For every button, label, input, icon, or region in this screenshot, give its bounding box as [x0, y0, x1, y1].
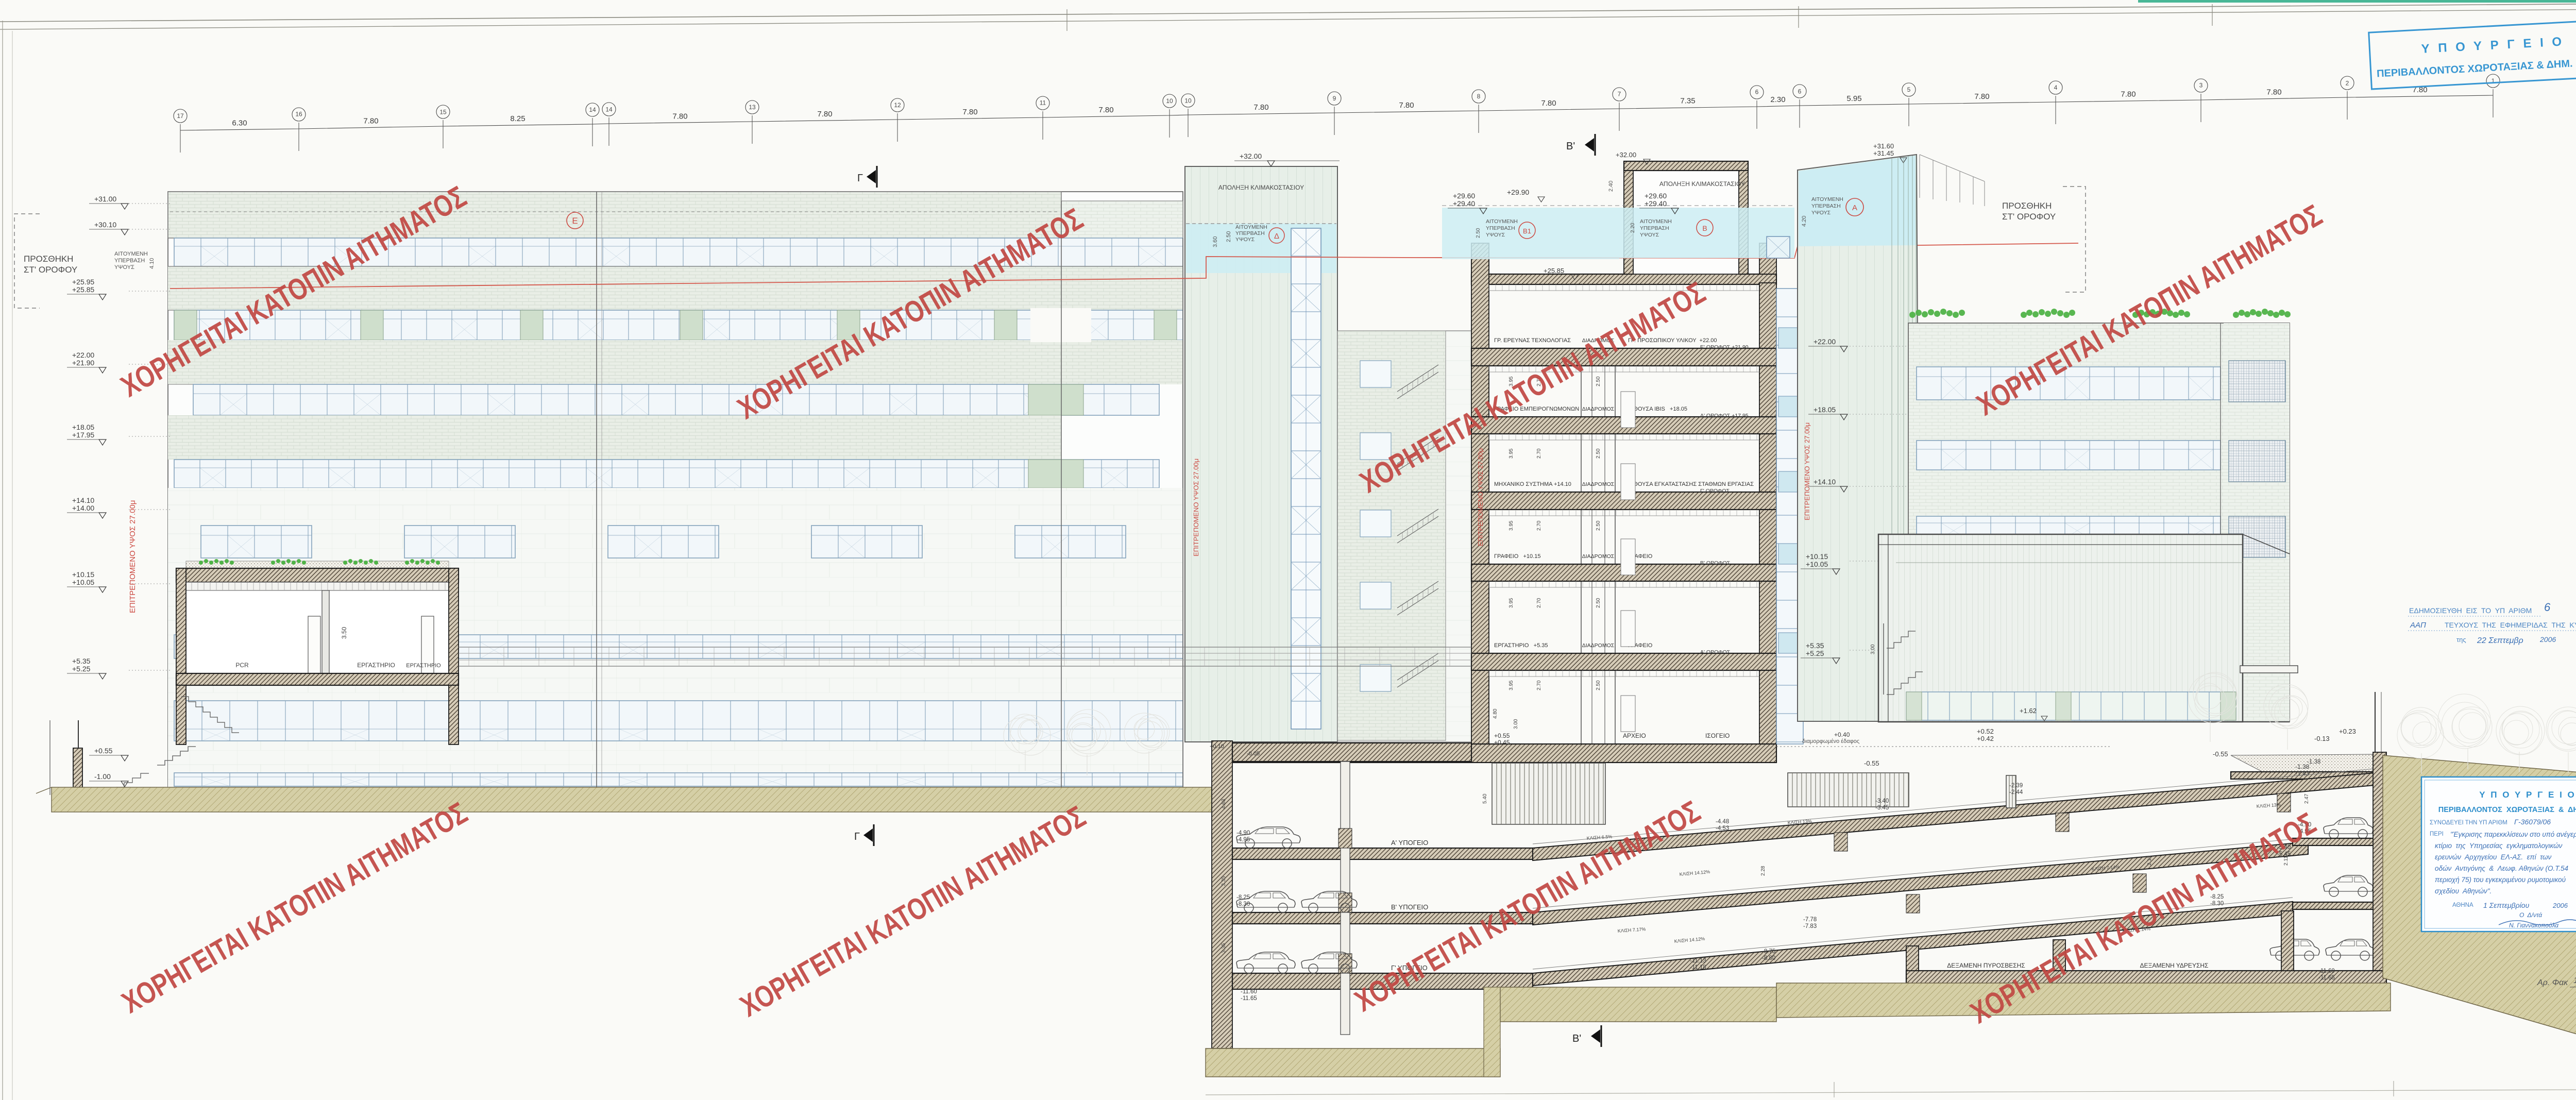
svg-text:της: της — [2456, 636, 2466, 644]
svg-text:-3.45: -3.45 — [1875, 805, 1889, 811]
svg-text:ΥΠΕΡΒΑΣΗ: ΥΠΕΡΒΑΣΗ — [1811, 203, 1841, 209]
svg-text:ΑΙΤΟΥΜΕΝΗ: ΑΙΤΟΥΜΕΝΗ — [1486, 218, 1518, 225]
svg-text:ΕΠΙΤΡΕΠΟΜΕΝΟ ΥΨΟΣ 27.00μ: ΕΠΙΤΡΕΠΟΜΕΝΟ ΥΨΟΣ 27.00μ — [1803, 422, 1811, 520]
svg-text:-11.60: -11.60 — [1241, 989, 1257, 995]
svg-text:6: 6 — [2544, 601, 2551, 614]
svg-text:+0.42: +0.42 — [1977, 735, 1994, 742]
svg-text:+30.10: +30.10 — [94, 221, 116, 229]
svg-text:3: 3 — [2199, 82, 2203, 89]
svg-text:ΔΕΞΑΜΕΝΗ ΥΔΡΕΥΣΗΣ: ΔΕΞΑΜΕΝΗ ΥΔΡΕΥΣΗΣ — [2140, 962, 2209, 969]
svg-text:5.95: 5.95 — [1846, 94, 1861, 103]
svg-text:ΑΙΤΟΥΜΕΝΗ: ΑΙΤΟΥΜΕΝΗ — [114, 251, 148, 257]
svg-text:ΥΠΕΡΒΑΣΗ: ΥΠΕΡΒΑΣΗ — [1486, 225, 1515, 231]
svg-text:Α' ΟΡΟΦΟΣ: Α' ΟΡΟΦΟΣ — [1700, 649, 1731, 655]
svg-text:ΣΥΝΟΔΕΥΕΙ ΤΗΝ ΥΠ ΑΡΙΘΜ: ΣΥΝΟΔΕΥΕΙ ΤΗΝ ΥΠ ΑΡΙΘΜ — [2430, 820, 2507, 826]
svg-text:-8.30: -8.30 — [1236, 901, 1250, 907]
svg-text:+14.00: +14.00 — [72, 504, 94, 512]
svg-text:PCR: PCR — [235, 662, 249, 669]
svg-text:+25.95: +25.95 — [72, 278, 94, 286]
svg-text:Γ' ΟΡΟΦΟΣ: Γ' ΟΡΟΦΟΣ — [1700, 488, 1730, 494]
svg-text:ΥΠΕΡΒΑΣΗ: ΥΠΕΡΒΑΣΗ — [114, 258, 145, 264]
svg-text:2.70: 2.70 — [1536, 598, 1542, 608]
svg-text:+5.25: +5.25 — [1806, 649, 1824, 657]
svg-text:8.25: 8.25 — [510, 114, 525, 123]
svg-text:+14.10: +14.10 — [72, 496, 94, 504]
svg-text:-8.75: -8.75 — [1762, 949, 1775, 955]
svg-text:-3.40: -3.40 — [1875, 798, 1889, 804]
svg-text:Β' ΥΠΟΓΕΙΟ: Β' ΥΠΟΓΕΙΟ — [1391, 903, 1428, 911]
svg-text:-7.83: -7.83 — [1803, 923, 1817, 929]
svg-text:2: 2 — [2346, 79, 2349, 87]
svg-text:5: 5 — [1907, 86, 1911, 93]
svg-text:3.95: 3.95 — [1509, 448, 1514, 459]
svg-text:Ε: Ε — [572, 216, 578, 226]
svg-text:ΣΤ' ΟΡΟΦΟΥ: ΣΤ' ΟΡΟΦΟΥ — [2002, 212, 2056, 222]
svg-text:Αρ. Φακ: Αρ. Φακ — [2537, 978, 2568, 987]
svg-text:2.20: 2.20 — [1630, 223, 1636, 233]
svg-text:2.50: 2.50 — [1596, 376, 1601, 386]
svg-text:-4.95: -4.95 — [1236, 837, 1250, 843]
svg-text:17: 17 — [177, 112, 184, 120]
svg-text:3.60: 3.60 — [1212, 236, 1218, 247]
svg-text:ΕΡΓΑΣΤΗΡΙΟ +5.35: ΕΡΓΑΣΤΗΡΙΟ +5.35 — [1494, 642, 1548, 649]
svg-text:2.50: 2.50 — [1596, 598, 1601, 608]
svg-text:-11.65: -11.65 — [1241, 995, 1257, 1002]
svg-text:ΥΠΕΡΒΑΣΗ: ΥΠΕΡΒΑΣΗ — [1235, 230, 1265, 236]
svg-text:-1.00: -1.00 — [94, 772, 111, 781]
svg-text:ΓΡ. ΕΡΕΥΝΑΣ ΤΕΧΝΟΛΟΓΙΑΣ: ΓΡ. ΕΡΕΥΝΑΣ ΤΕΧΝΟΛΟΓΙΑΣ — [1494, 337, 1571, 344]
svg-text:14: 14 — [589, 106, 596, 113]
svg-text:+5.35: +5.35 — [72, 657, 91, 665]
svg-text:+14.10: +14.10 — [1814, 478, 1836, 486]
svg-text:ΑΠΟΛΗΞΗ ΚΛΙΜΑΚΟΣΤΑΣΙΟΥ: ΑΠΟΛΗΞΗ ΚΛΙΜΑΚΟΣΤΑΣΙΟΥ — [1659, 180, 1745, 188]
svg-text:Γ-36079/06: Γ-36079/06 — [2514, 818, 2551, 826]
svg-text:ΥΨΟΥΣ: ΥΨΟΥΣ — [114, 264, 134, 270]
svg-text:7.35: 7.35 — [1680, 97, 1695, 106]
svg-text:ΔΙΑΔΡΟΜΟΣ: ΔΙΑΔΡΟΜΟΣ — [1582, 481, 1615, 487]
svg-text:9: 9 — [1333, 95, 1336, 102]
svg-text:+18.05: +18.05 — [1814, 405, 1836, 414]
svg-text:4.20: 4.20 — [1801, 216, 1807, 227]
svg-text:6: 6 — [1798, 88, 1802, 95]
svg-text:διαμορφωμένο έδαφος: διαμορφωμένο έδαφος — [1802, 738, 1859, 744]
svg-text:ερευνών Αρχηγείου ΕΛ-ΑΣ. επ: ερευνών Αρχηγείου ΕΛ-ΑΣ. επί των — [2435, 853, 2551, 861]
svg-text:-8.25: -8.25 — [1236, 894, 1250, 901]
svg-text:Β1: Β1 — [1523, 227, 1531, 235]
svg-text:-7.78: -7.78 — [1803, 917, 1817, 923]
svg-text:2006: 2006 — [2552, 902, 2568, 909]
svg-text:11: 11 — [1040, 99, 1046, 107]
svg-text:7.80: 7.80 — [363, 116, 378, 125]
svg-text:+25.85: +25.85 — [72, 285, 94, 294]
svg-text:6: 6 — [1755, 89, 1759, 96]
svg-text:+32.00: +32.00 — [1240, 152, 1262, 160]
svg-text:ΥΨΟΥΣ: ΥΨΟΥΣ — [1640, 232, 1659, 238]
svg-text:3.35: 3.35 — [1221, 876, 1227, 886]
svg-text:2.70: 2.70 — [1536, 680, 1542, 690]
svg-text:σχεδίου Αθηνών".: σχεδίου Αθηνών". — [2435, 887, 2492, 895]
svg-text:2.50: 2.50 — [1596, 680, 1601, 690]
svg-text:16: 16 — [295, 111, 302, 118]
svg-text:ΕΠΙΤΡΕΠΟΜΕΝΟ ΥΨΟΣ 27.00μ: ΕΠΙΤΡΕΠΟΜΕΝΟ ΥΨΟΣ 27.00μ — [128, 500, 137, 613]
svg-text:7.80: 7.80 — [1541, 99, 1556, 108]
svg-text:ΕΠΙΤΡΕΠΟΜΕΝΟ ΥΨΟΣ 27.00μ: ΕΠΙΤΡΕΠΟΜΕΝΟ ΥΨΟΣ 27.00μ — [1192, 459, 1200, 556]
svg-text:ΕΔΗΜΟΣΙΕΥΘΗ ΕΙΣ ΤΟ ΥΠ ΑΡΙΘ: ΕΔΗΜΟΣΙΕΥΘΗ ΕΙΣ ΤΟ ΥΠ ΑΡΙΘΜ — [2409, 606, 2532, 615]
svg-text:2.70: 2.70 — [1536, 448, 1542, 459]
svg-text:ΠΡΟΣΘΗΚΗ: ΠΡΟΣΘΗΚΗ — [2002, 201, 2052, 211]
svg-text:-11.60: -11.60 — [2318, 968, 2335, 974]
svg-text:4.63: 4.63 — [1221, 799, 1227, 809]
svg-text:"Έγκρισης παρεκκλίσεων στο υπό: "Έγκρισης παρεκκλίσεων στο υπό ανέγερση — [2450, 831, 2576, 838]
svg-text:+31.60: +31.60 — [1873, 142, 1894, 150]
svg-text:+17.95: +17.95 — [72, 431, 94, 439]
svg-text:3.95: 3.95 — [1509, 520, 1514, 531]
svg-text:ΥΨΟΥΣ: ΥΨΟΥΣ — [1486, 232, 1505, 238]
svg-text:Γ: Γ — [857, 173, 863, 184]
svg-text:Α' ΥΠΟΓΕΙΟ: Α' ΥΠΟΓΕΙΟ — [1391, 839, 1428, 847]
svg-text:περιοχή 75) του εγκεκριμένου ρ: περιοχή 75) του εγκεκριμένου ρυμοτομικού — [2435, 876, 2566, 884]
svg-text:+22.00: +22.00 — [1814, 337, 1836, 346]
svg-text:ΕΡΓΑΣΤΗΡΙΟ: ΕΡΓΑΣΤΗΡΙΟ — [357, 662, 395, 669]
svg-text:138/06: 138/06 — [2573, 975, 2576, 985]
svg-text:Ε' ΟΡΟΦΟΣ +21.90: Ε' ΟΡΟΦΟΣ +21.90 — [1700, 344, 1749, 350]
svg-text:1 Σεπτεμβρίου: 1 Σεπτεμβρίου — [2483, 901, 2530, 909]
svg-text:2.19: 2.19 — [2147, 855, 2153, 866]
svg-text:ΓΡΑΦΕΙΟ +10.15: ΓΡΑΦΕΙΟ +10.15 — [1494, 553, 1540, 560]
svg-text:7.80: 7.80 — [2121, 90, 2136, 99]
svg-text:7.80: 7.80 — [1098, 106, 1113, 114]
svg-text:Ν. Γιαννακοπούλα: Ν. Γιαννακοπούλα — [2509, 922, 2559, 929]
svg-text:ΑΡΧΕΙΟ: ΑΡΧΕΙΟ — [1623, 732, 1646, 739]
svg-text:ΕΡΓΑΣΤΗΡΙΟ: ΕΡΓΑΣΤΗΡΙΟ — [406, 663, 441, 669]
svg-text:+0.10: +0.10 — [1210, 743, 1224, 750]
svg-text:2.40: 2.40 — [1608, 181, 1614, 192]
svg-text:Δ' ΟΡΟΦΟΣ +17.95: Δ' ΟΡΟΦΟΣ +17.95 — [1700, 413, 1749, 419]
svg-text:-4.48: -4.48 — [1716, 819, 1729, 825]
svg-text:2.28: 2.28 — [1760, 866, 1766, 876]
svg-text:3.00: 3.00 — [1870, 644, 1876, 654]
svg-text:ΑΙΘΟΥΣΑ IBIS +18.05: ΑΙΘΟΥΣΑ IBIS +18.05 — [1628, 406, 1687, 412]
svg-text:-4.53: -4.53 — [1716, 825, 1729, 832]
svg-text:+22.00: +22.00 — [72, 351, 94, 359]
svg-text:ΑΙΤΟΥΜΕΝΗ: ΑΙΤΟΥΜΕΝΗ — [1235, 224, 1267, 230]
svg-text:Β': Β' — [1566, 141, 1575, 152]
svg-text:22 Σεπτεμβρ: 22 Σεπτεμβρ — [2477, 636, 2523, 645]
svg-text:7.80: 7.80 — [1399, 101, 1414, 110]
svg-text:13: 13 — [749, 104, 756, 111]
svg-text:3.95: 3.95 — [1509, 598, 1514, 608]
svg-text:ΑΑΠ: ΑΑΠ — [2410, 621, 2426, 630]
svg-text:ΤΕΥΧΟΥΣ ΤΗΣ ΕΦΗΜΕΡΙΔΑΣ ΤΗΣ: ΤΕΥΧΟΥΣ ΤΗΣ ΕΦΗΜΕΡΙΔΑΣ ΤΗΣ ΚΥΒΕΡΝΗΣΕΩΣ — [2445, 621, 2576, 629]
svg-text:+29.60: +29.60 — [1645, 192, 1667, 200]
svg-text:+0.45: +0.45 — [1494, 739, 1510, 746]
svg-text:ΠΡΟΣΘΗΚΗ: ΠΡΟΣΘΗΚΗ — [24, 254, 73, 264]
svg-text:4: 4 — [2054, 84, 2058, 91]
svg-text:-4.90: -4.90 — [1236, 830, 1250, 836]
svg-text:2.50: 2.50 — [1596, 448, 1601, 459]
svg-text:ΕΠΙΤΡΕΠΟΜΕΝΟ ΥΨΟΣ 27.00μ: ΕΠΙΤΡΕΠΟΜΕΝΟ ΥΨΟΣ 27.00μ — [1477, 448, 1484, 546]
svg-text:7: 7 — [1618, 91, 1621, 98]
svg-text:+29.60: +29.60 — [1453, 192, 1475, 200]
svg-text:15: 15 — [439, 108, 447, 115]
svg-text:+29.90: +29.90 — [1507, 188, 1529, 196]
svg-text:Υ Π Ο Υ Ρ Γ Ε Ι Ο: Υ Π Ο Υ Ρ Γ Ε Ι Ο — [2479, 790, 2576, 800]
svg-text:4.80: 4.80 — [1493, 708, 1498, 719]
svg-text:ΔΙΑΔΡΟΜΟΣ: ΔΙΑΔΡΟΜΟΣ — [1582, 406, 1615, 412]
svg-text:2.70: 2.70 — [1536, 520, 1542, 531]
svg-text:ΠΕΡΙ: ΠΕΡΙ — [2430, 831, 2444, 837]
svg-text:+0.55: +0.55 — [1494, 732, 1510, 739]
svg-text:7.80: 7.80 — [672, 112, 687, 121]
svg-text:2006: 2006 — [2539, 635, 2556, 644]
svg-text:Β: Β — [1702, 224, 1707, 232]
svg-text:ΣΤ' ΟΡΟΦΟΥ: ΣΤ' ΟΡΟΦΟΥ — [24, 265, 77, 275]
svg-text:Β' ΟΡΟΦΟΣ: Β' ΟΡΟΦΟΣ — [1700, 560, 1731, 566]
svg-text:κτίριο της Υπηρεσίας εγκλημ: κτίριο της Υπηρεσίας εγκληματολογικών — [2435, 842, 2563, 850]
svg-text:ΑΠΟΛΗΞΗ ΚΛΙΜΑΚΟΣΤΑΣΙΟΥ: ΑΠΟΛΗΞΗ ΚΛΙΜΑΚΟΣΤΑΣΙΟΥ — [1218, 184, 1304, 191]
svg-text:4.10: 4.10 — [149, 258, 155, 269]
svg-text:-11.65: -11.65 — [2318, 975, 2335, 981]
svg-text:+0.40: +0.40 — [1834, 731, 1850, 738]
svg-text:ΜΗΧΑΝΙΚΟ ΣΥΣΤΗΜΑ +14.10: ΜΗΧΑΝΙΚΟ ΣΥΣΤΗΜΑ +14.10 — [1494, 481, 1571, 487]
svg-text:10: 10 — [1184, 97, 1192, 104]
svg-text:ΙΣΟΓΕΙΟ: ΙΣΟΓΕΙΟ — [1705, 732, 1730, 739]
svg-text:ΔΕΞΑΜΕΝΗ ΠΥΡΟΣΒΕΣΗΣ: ΔΕΞΑΜΕΝΗ ΠΥΡΟΣΒΕΣΗΣ — [1947, 962, 2025, 969]
svg-text:Γ: Γ — [854, 831, 860, 842]
svg-text:ΥΨΟΥΣ: ΥΨΟΥΣ — [1811, 210, 1831, 216]
svg-text:+1.62: +1.62 — [2020, 707, 2037, 715]
svg-text:-11.18: -11.18 — [1690, 964, 1706, 971]
svg-text:+0.55: +0.55 — [94, 747, 113, 755]
svg-text:+29.40: +29.40 — [1645, 199, 1667, 208]
svg-text:3.00: 3.00 — [1513, 719, 1519, 729]
svg-text:-1.38: -1.38 — [2307, 759, 2320, 765]
svg-text:+31.45: +31.45 — [1873, 149, 1894, 157]
svg-text:ΑΙΤΟΥΜΕΝΗ: ΑΙΤΟΥΜΕΝΗ — [1640, 218, 1672, 225]
svg-text:2.30: 2.30 — [1770, 95, 1785, 104]
svg-text:+0.23: +0.23 — [2339, 727, 2356, 735]
svg-text:+32.00: +32.00 — [1616, 151, 1636, 159]
svg-text:+10.05: +10.05 — [1806, 560, 1828, 568]
svg-text:5.40: 5.40 — [1482, 793, 1488, 804]
svg-text:+0.52: +0.52 — [1977, 727, 1994, 735]
svg-text:-0.55: -0.55 — [1864, 759, 1879, 767]
svg-text:Β': Β' — [1572, 1033, 1581, 1044]
svg-text:+10.15: +10.15 — [1806, 552, 1828, 561]
svg-text:+18.05: +18.05 — [72, 423, 94, 431]
svg-text:10: 10 — [1166, 97, 1173, 105]
svg-text:ΑΘΗΝΑ: ΑΘΗΝΑ — [2452, 902, 2473, 908]
svg-text:7.80: 7.80 — [1974, 92, 1989, 101]
svg-text:-2.39: -2.39 — [2009, 783, 2023, 789]
svg-text:-0.55: -0.55 — [2213, 750, 2228, 758]
svg-text:+5.25: +5.25 — [72, 665, 91, 673]
svg-text:-0.05: -0.05 — [1247, 751, 1260, 757]
svg-text:ΑΙΤΟΥΜΕΝΗ: ΑΙΤΟΥΜΕΝΗ — [1811, 196, 1843, 202]
svg-text:Δ: Δ — [1274, 232, 1279, 241]
svg-text:οδών Αντιγόνης & Λεωφ. Αθην: οδών Αντιγόνης & Λεωφ. Αθηνών (Ο.Τ.54 — [2435, 865, 2568, 872]
svg-text:ΔΙΑΔΡΟΜΟΣ: ΔΙΑΔΡΟΜΟΣ — [1582, 642, 1615, 649]
svg-text:3.35: 3.35 — [1221, 943, 1227, 953]
svg-text:-8.80: -8.80 — [1762, 955, 1775, 961]
svg-text:+31.00: +31.00 — [94, 195, 116, 203]
svg-text:6.30: 6.30 — [232, 119, 247, 127]
svg-text:-2.44: -2.44 — [2009, 789, 2023, 796]
svg-text:7.80: 7.80 — [962, 108, 977, 116]
svg-text:2.50: 2.50 — [1596, 520, 1601, 531]
svg-text:7.80: 7.80 — [817, 110, 832, 119]
svg-text:14: 14 — [605, 106, 613, 113]
svg-text:3.95: 3.95 — [1509, 680, 1514, 690]
svg-text:+29.40: +29.40 — [1453, 199, 1475, 208]
svg-text:+5.35: +5.35 — [1806, 641, 1824, 650]
svg-text:3.50: 3.50 — [341, 627, 348, 639]
svg-text:ΔΙΑΔΡΟΜΟΣ: ΔΙΑΔΡΟΜΟΣ — [1582, 553, 1615, 560]
svg-text:2.50: 2.50 — [1476, 228, 1481, 238]
svg-text:+10.15: +10.15 — [72, 570, 94, 579]
svg-text:ΑΙΘΟΥΣΑ ΕΓΚΑΤΑΣΤΑΣΗΣ ΣΤΑΘΜΩΝ Ε: ΑΙΘΟΥΣΑ ΕΓΚΑΤΑΣΤΑΣΗΣ ΣΤΑΘΜΩΝ ΕΡΓΑΣΙΑΣ — [1628, 481, 1754, 487]
svg-text:8: 8 — [1477, 93, 1481, 100]
svg-text:+25.85: +25.85 — [1544, 267, 1564, 275]
svg-text:7.80: 7.80 — [2266, 88, 2281, 96]
svg-text:2.47: 2.47 — [2304, 793, 2310, 804]
svg-text:-0.13: -0.13 — [2314, 735, 2330, 742]
svg-text:ΥΠΕΡΒΑΣΗ: ΥΠΕΡΒΑΣΗ — [1640, 225, 1669, 231]
svg-text:ΥΨΟΥΣ: ΥΨΟΥΣ — [1235, 236, 1255, 243]
svg-text:+10.05: +10.05 — [72, 578, 94, 586]
svg-text:-11.13: -11.13 — [1690, 958, 1706, 964]
svg-text:Α: Α — [1852, 204, 1857, 212]
svg-text:7.80: 7.80 — [1253, 103, 1268, 112]
svg-text:+21.90: +21.90 — [72, 359, 94, 367]
svg-text:2.50: 2.50 — [1226, 231, 1232, 242]
svg-text:12: 12 — [894, 101, 901, 109]
svg-text:2.11: 2.11 — [2283, 856, 2289, 866]
svg-text:ΠΕΡΙΒΑΛΛΟΝΤΟΣ ΧΩΡΟΤΑΞΙΑΣ &: ΠΕΡΙΒΑΛΛΟΝΤΟΣ ΧΩΡΟΤΑΞΙΑΣ & ΔΗΜ. ΕΡΓΩΝ — [2438, 806, 2576, 814]
svg-text:-8.30: -8.30 — [2210, 901, 2224, 907]
svg-text:Ο Δ/ντά: Ο Δ/ντά — [2519, 911, 2543, 919]
